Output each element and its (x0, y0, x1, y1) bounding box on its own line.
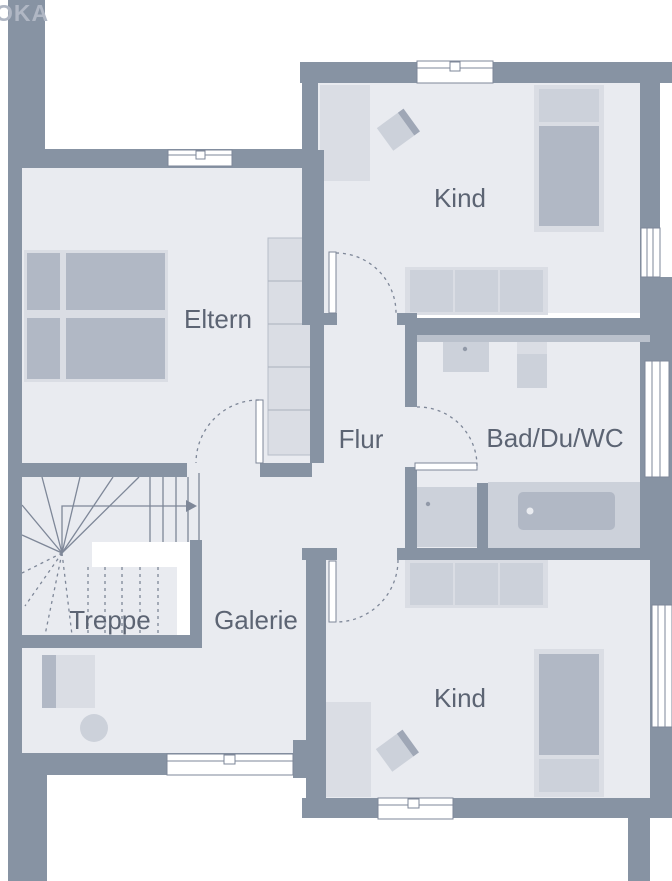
wall (8, 775, 47, 881)
window (167, 754, 293, 775)
door-gap-fill (337, 313, 397, 325)
label-galerie: Galerie (214, 605, 298, 635)
window (417, 61, 493, 83)
door-gap-fill (337, 548, 397, 560)
bed-mattress (66, 253, 165, 310)
wall (302, 548, 337, 560)
bed-mattress (539, 126, 599, 226)
shower-drain (426, 502, 430, 506)
toilet-tank (517, 342, 547, 354)
label-treppe: Treppe (69, 605, 150, 635)
armchair-backrest (42, 655, 56, 708)
wall (8, 168, 22, 775)
washbasin (443, 342, 489, 372)
wall (190, 540, 202, 647)
wall (310, 150, 324, 463)
wall (306, 560, 326, 818)
wall (293, 740, 312, 778)
floor-plan: Kind Eltern Flur Bad/Du/WC Treppe Galeri… (0, 0, 672, 881)
wall (22, 463, 187, 477)
window (652, 605, 672, 727)
wall (405, 467, 417, 548)
brand-watermark: OKA (0, 0, 49, 26)
label-flur: Flur (339, 424, 384, 454)
wardrobe (326, 702, 371, 797)
bed-pillow (539, 89, 599, 122)
wall (8, 635, 202, 648)
stair-landing (177, 542, 190, 635)
partition-wall (477, 483, 488, 548)
window (168, 150, 232, 166)
floor-plan-svg: Kind Eltern Flur Bad/Du/WC Treppe Galeri… (0, 0, 672, 881)
side-table (80, 714, 108, 742)
bed-pillow (539, 759, 599, 792)
window (641, 228, 660, 277)
wall (405, 548, 650, 560)
shower (415, 487, 477, 547)
wall (405, 325, 417, 407)
wall (413, 318, 640, 335)
label-eltern: Eltern (184, 304, 252, 334)
bed-pillow (27, 253, 60, 310)
window (378, 798, 453, 819)
door-gap-fill (405, 407, 417, 467)
label-bad: Bad/Du/WC (486, 423, 623, 453)
wall (302, 313, 337, 325)
stair-landing (92, 542, 190, 567)
wardrobe (320, 85, 370, 181)
bed-mattress (539, 654, 599, 755)
wall (397, 548, 407, 560)
wall (302, 798, 650, 818)
label-kind-bottom: Kind (434, 683, 486, 713)
wall (628, 818, 650, 881)
bathtub-drain (527, 508, 534, 515)
bed-mattress (66, 318, 165, 379)
washbasin-tap (463, 347, 467, 351)
label-kind-top: Kind (434, 183, 486, 213)
bed-pillow (27, 318, 60, 379)
wall-shadow (413, 335, 650, 342)
window (645, 361, 669, 477)
wall (260, 463, 312, 477)
